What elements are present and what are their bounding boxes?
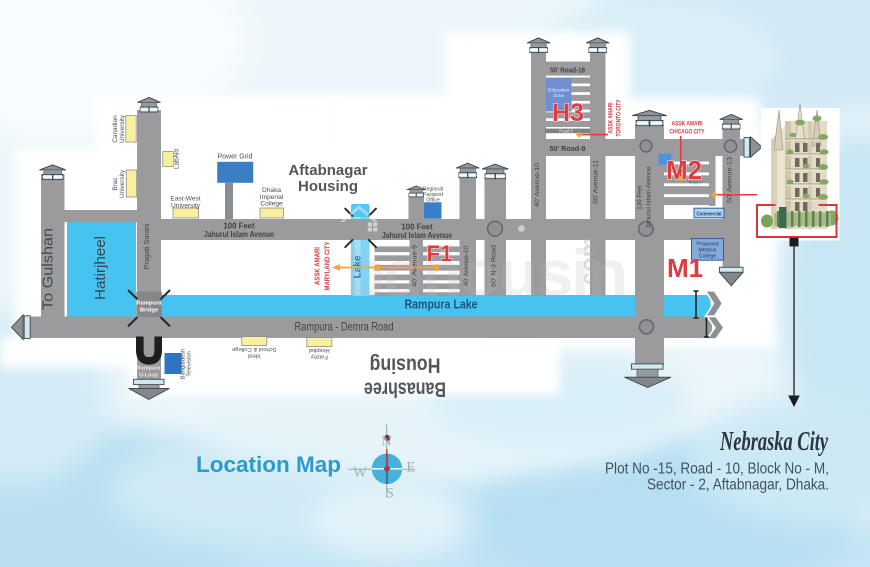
svg-text:University: University	[119, 114, 126, 143]
svg-text:Location Map: Location Map	[196, 452, 341, 477]
svg-text:60' N-3 Road: 60' N-3 Road	[491, 245, 498, 287]
svg-text:Power Grid: Power Grid	[217, 154, 252, 161]
svg-text:MARYLAND CITY: MARYLAND CITY	[323, 242, 332, 291]
svg-text:Faizey: Faizey	[311, 353, 328, 359]
svg-text:Sector - 2, Aftabnagar, Dhaka.: Sector - 2, Aftabnagar, Dhaka.	[647, 476, 829, 493]
svg-text:School & College: School & College	[232, 346, 276, 352]
svg-text:Television: Television	[187, 351, 193, 376]
svg-text:University: University	[171, 202, 201, 209]
svg-text:Hospital: Hospital	[309, 347, 330, 353]
svg-text:CHICAGO CITY: CHICAGO CITY	[670, 129, 706, 136]
svg-text:Jahurul Islam Avenue: Jahurul Islam Avenue	[204, 230, 275, 239]
svg-text:40' Avenue-10: 40' Avenue-10	[534, 163, 541, 207]
svg-text:ASSK AMARI: ASSK AMARI	[313, 247, 322, 285]
svg-text:Rampura - Demra Road: Rampura - Demra Road	[295, 320, 394, 334]
svg-text:ASSK AMARI: ASSK AMARI	[608, 102, 615, 133]
svg-text:U-Loop: U-Loop	[139, 373, 159, 379]
svg-text:Banashree: Banashree	[364, 378, 446, 401]
svg-text:LabAid: LabAid	[174, 149, 181, 169]
svg-text:Rampura Lake: Rampura Lake	[405, 298, 478, 312]
svg-text:ASSK AMARI: ASSK AMARI	[672, 121, 703, 128]
svg-text:TORONTO CITY: TORONTO CITY	[616, 99, 623, 137]
svg-text:N: N	[381, 434, 392, 450]
svg-text:40' Avenue-10: 40' Avenue-10	[463, 246, 470, 286]
svg-text:Nebraska City: Nebraska City	[719, 426, 828, 456]
svg-text:College: College	[260, 201, 283, 208]
svg-text:M2: M2	[666, 155, 702, 185]
svg-text:F1: F1	[427, 241, 453, 266]
svg-text:Jahurul Islam Avenue: Jahurul Islam Avenue	[646, 166, 653, 229]
svg-text:Aftabnagar: Aftabnagar	[288, 162, 367, 179]
svg-text:Pragati Sarani: Pragati Sarani	[142, 223, 151, 269]
svg-text:Commercial: Commercial	[697, 211, 722, 217]
svg-text:50' Avenue-11: 50' Avenue-11	[593, 160, 600, 204]
svg-text:50' Road-18: 50' Road-18	[550, 68, 585, 75]
svg-text:50' Avenue-13: 50' Avenue-13	[726, 157, 733, 203]
svg-text:Jahurul Islam Avenue: Jahurul Islam Avenue	[382, 231, 453, 240]
svg-text:University: University	[119, 169, 126, 198]
svg-text:Housing: Housing	[370, 354, 441, 377]
svg-text:To Gulshan: To Gulshan	[40, 228, 57, 310]
svg-text:W: W	[353, 465, 367, 481]
svg-text:S: S	[386, 486, 394, 502]
svg-text:E: E	[406, 460, 415, 476]
svg-text:H3: H3	[552, 99, 584, 127]
svg-text:50' Road-8: 50' Road-8	[550, 144, 586, 153]
svg-text:.com: .com	[576, 236, 603, 292]
svg-text:Housing: Housing	[298, 178, 358, 195]
svg-text:Rampura: Rampura	[136, 301, 162, 307]
svg-text:Ideal: Ideal	[248, 352, 261, 358]
svg-text:Rampura: Rampura	[137, 366, 161, 372]
svg-text:Plot No -15, Road - 10, Block: Plot No -15, Road - 10, Block No - M,	[605, 461, 829, 478]
svg-text:Road 8: Road 8	[559, 128, 573, 133]
svg-text:Office: Office	[426, 198, 440, 204]
svg-text:40' Avenue-9: 40' Avenue-9	[411, 245, 418, 287]
svg-text:Education: Education	[548, 88, 570, 94]
svg-text:Hatirjheel: Hatirjheel	[93, 236, 109, 300]
svg-text:Bridge: Bridge	[140, 307, 159, 313]
svg-text:Canadian: Canadian	[112, 115, 119, 143]
svg-text:Brac: Brac	[112, 177, 119, 191]
svg-text:M1: M1	[667, 253, 703, 283]
svg-text:130 Feet: 130 Feet	[637, 185, 644, 210]
